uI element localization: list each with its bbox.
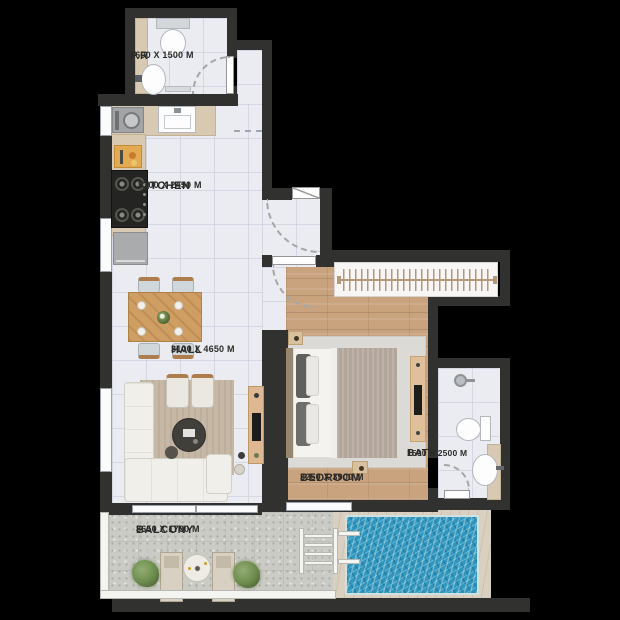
room-dimensions: 8650 X 1700 M: [136, 524, 200, 535]
window: [100, 388, 112, 472]
pool-ladder-rung: [304, 552, 333, 556]
pool-ladder-rung: [304, 543, 333, 547]
coffee-table: [172, 418, 206, 452]
washer-panel: [115, 111, 119, 130]
toilet-tank: [480, 416, 491, 441]
washbasin: [141, 64, 166, 95]
burner: [115, 177, 129, 191]
bedroom-door-slab: [272, 256, 316, 265]
side-table: [234, 464, 245, 475]
plate: [137, 301, 146, 310]
floor-plan: P.R 1600 X 1500 M KITCHEN 3100 X 2450 M …: [0, 0, 620, 620]
pool: [345, 515, 479, 595]
refrigerator: [113, 232, 148, 265]
fridge-handle: [116, 260, 145, 262]
wall-segment: [98, 94, 238, 106]
stove: [111, 170, 148, 228]
wall-segment: [227, 8, 237, 58]
plant: [233, 561, 260, 588]
pillow: [306, 404, 319, 444]
sliding-door: [132, 505, 258, 513]
floor-lamp: [238, 452, 245, 459]
table-deco: [183, 429, 195, 437]
console-deco: [254, 393, 259, 398]
toilet: [156, 18, 190, 29]
entrance-door-slab: [292, 187, 320, 199]
flower-centerpiece: [157, 311, 170, 324]
bed-headboard: [286, 348, 293, 458]
stove-knob: [143, 193, 146, 196]
toilet: [456, 418, 481, 441]
pool-ladder-handrail: [338, 531, 360, 536]
armchair: [166, 374, 189, 408]
pool-ladder-rung: [304, 561, 333, 565]
burner: [115, 208, 129, 222]
faucet: [135, 75, 142, 82]
tv-partition-wall: [262, 330, 288, 505]
table-deco: [188, 567, 191, 570]
room-dimensions: 3100 X 2450 M: [138, 180, 202, 191]
plant: [132, 560, 159, 587]
opening-dashed-line: [234, 130, 262, 132]
lamp: [359, 466, 364, 471]
stove-knob: [143, 203, 146, 206]
bath-door-slab: [444, 490, 470, 499]
blanket: [337, 348, 397, 458]
room-dimensions: 1500 X 2500 M: [407, 448, 467, 459]
dresser-tv: [410, 356, 426, 442]
stove-knob: [143, 213, 146, 216]
cutting-board: [114, 145, 142, 168]
dining-chair: [172, 277, 194, 293]
wall-segment: [262, 255, 272, 267]
balcony-railing: [100, 512, 109, 598]
room-dimensions: 1600 X 1500 M: [130, 50, 194, 61]
faucet: [174, 108, 181, 113]
wall-segment: [428, 296, 438, 458]
plate: [174, 301, 183, 310]
console-deco: [254, 453, 259, 458]
washing-machine: [112, 107, 144, 133]
fruit: [129, 152, 136, 159]
wall-segment: [500, 358, 510, 508]
table-deco: [193, 439, 198, 444]
dresser-deco: [416, 363, 420, 367]
balcony-railing: [100, 590, 336, 599]
lounge-chair-indoor: [206, 454, 232, 494]
table-deco: [204, 562, 207, 565]
wardrobe-hangers: [343, 269, 491, 291]
tv-console: [248, 386, 264, 464]
room-dimensions: 3100 X 4650 M: [171, 344, 235, 355]
wardrobe: [334, 262, 498, 297]
wall-segment: [438, 296, 510, 306]
armchair: [191, 374, 214, 408]
fruit: [131, 160, 137, 166]
lamp: [294, 336, 299, 341]
pool-ladder-rung: [304, 534, 333, 538]
wall-segment: [125, 8, 237, 18]
shower-arm: [466, 379, 475, 382]
sink-basin: [164, 115, 191, 129]
dresser-deco: [416, 431, 420, 435]
table-deco: [193, 564, 202, 573]
wall-segment: [262, 40, 272, 190]
nightstand: [288, 331, 303, 345]
bath-mat: [165, 86, 191, 92]
window: [100, 106, 112, 136]
pool-ladder-handrail: [338, 559, 360, 564]
knife: [120, 150, 123, 164]
dining-chair: [138, 277, 160, 293]
wardrobe-end: [493, 276, 497, 284]
dining-chair: [138, 343, 160, 359]
chair-cushion: [216, 556, 231, 568]
washer-drum: [123, 112, 140, 129]
tv: [414, 385, 422, 415]
washbasin: [472, 454, 498, 486]
tv: [252, 413, 261, 441]
plate: [174, 327, 183, 336]
wardrobe-end: [337, 276, 341, 284]
faucet: [496, 466, 504, 470]
kitchen-sink: [158, 106, 196, 133]
wall-segment: [332, 250, 510, 262]
pouf: [165, 446, 178, 459]
dining-table: [128, 292, 202, 342]
plate: [137, 327, 146, 336]
round-table: [183, 554, 211, 582]
chair-cushion: [164, 556, 179, 568]
room-dimensions: 3250 X 3900 M: [300, 472, 364, 483]
bedroom-window: [286, 502, 352, 511]
pillow: [306, 356, 319, 396]
